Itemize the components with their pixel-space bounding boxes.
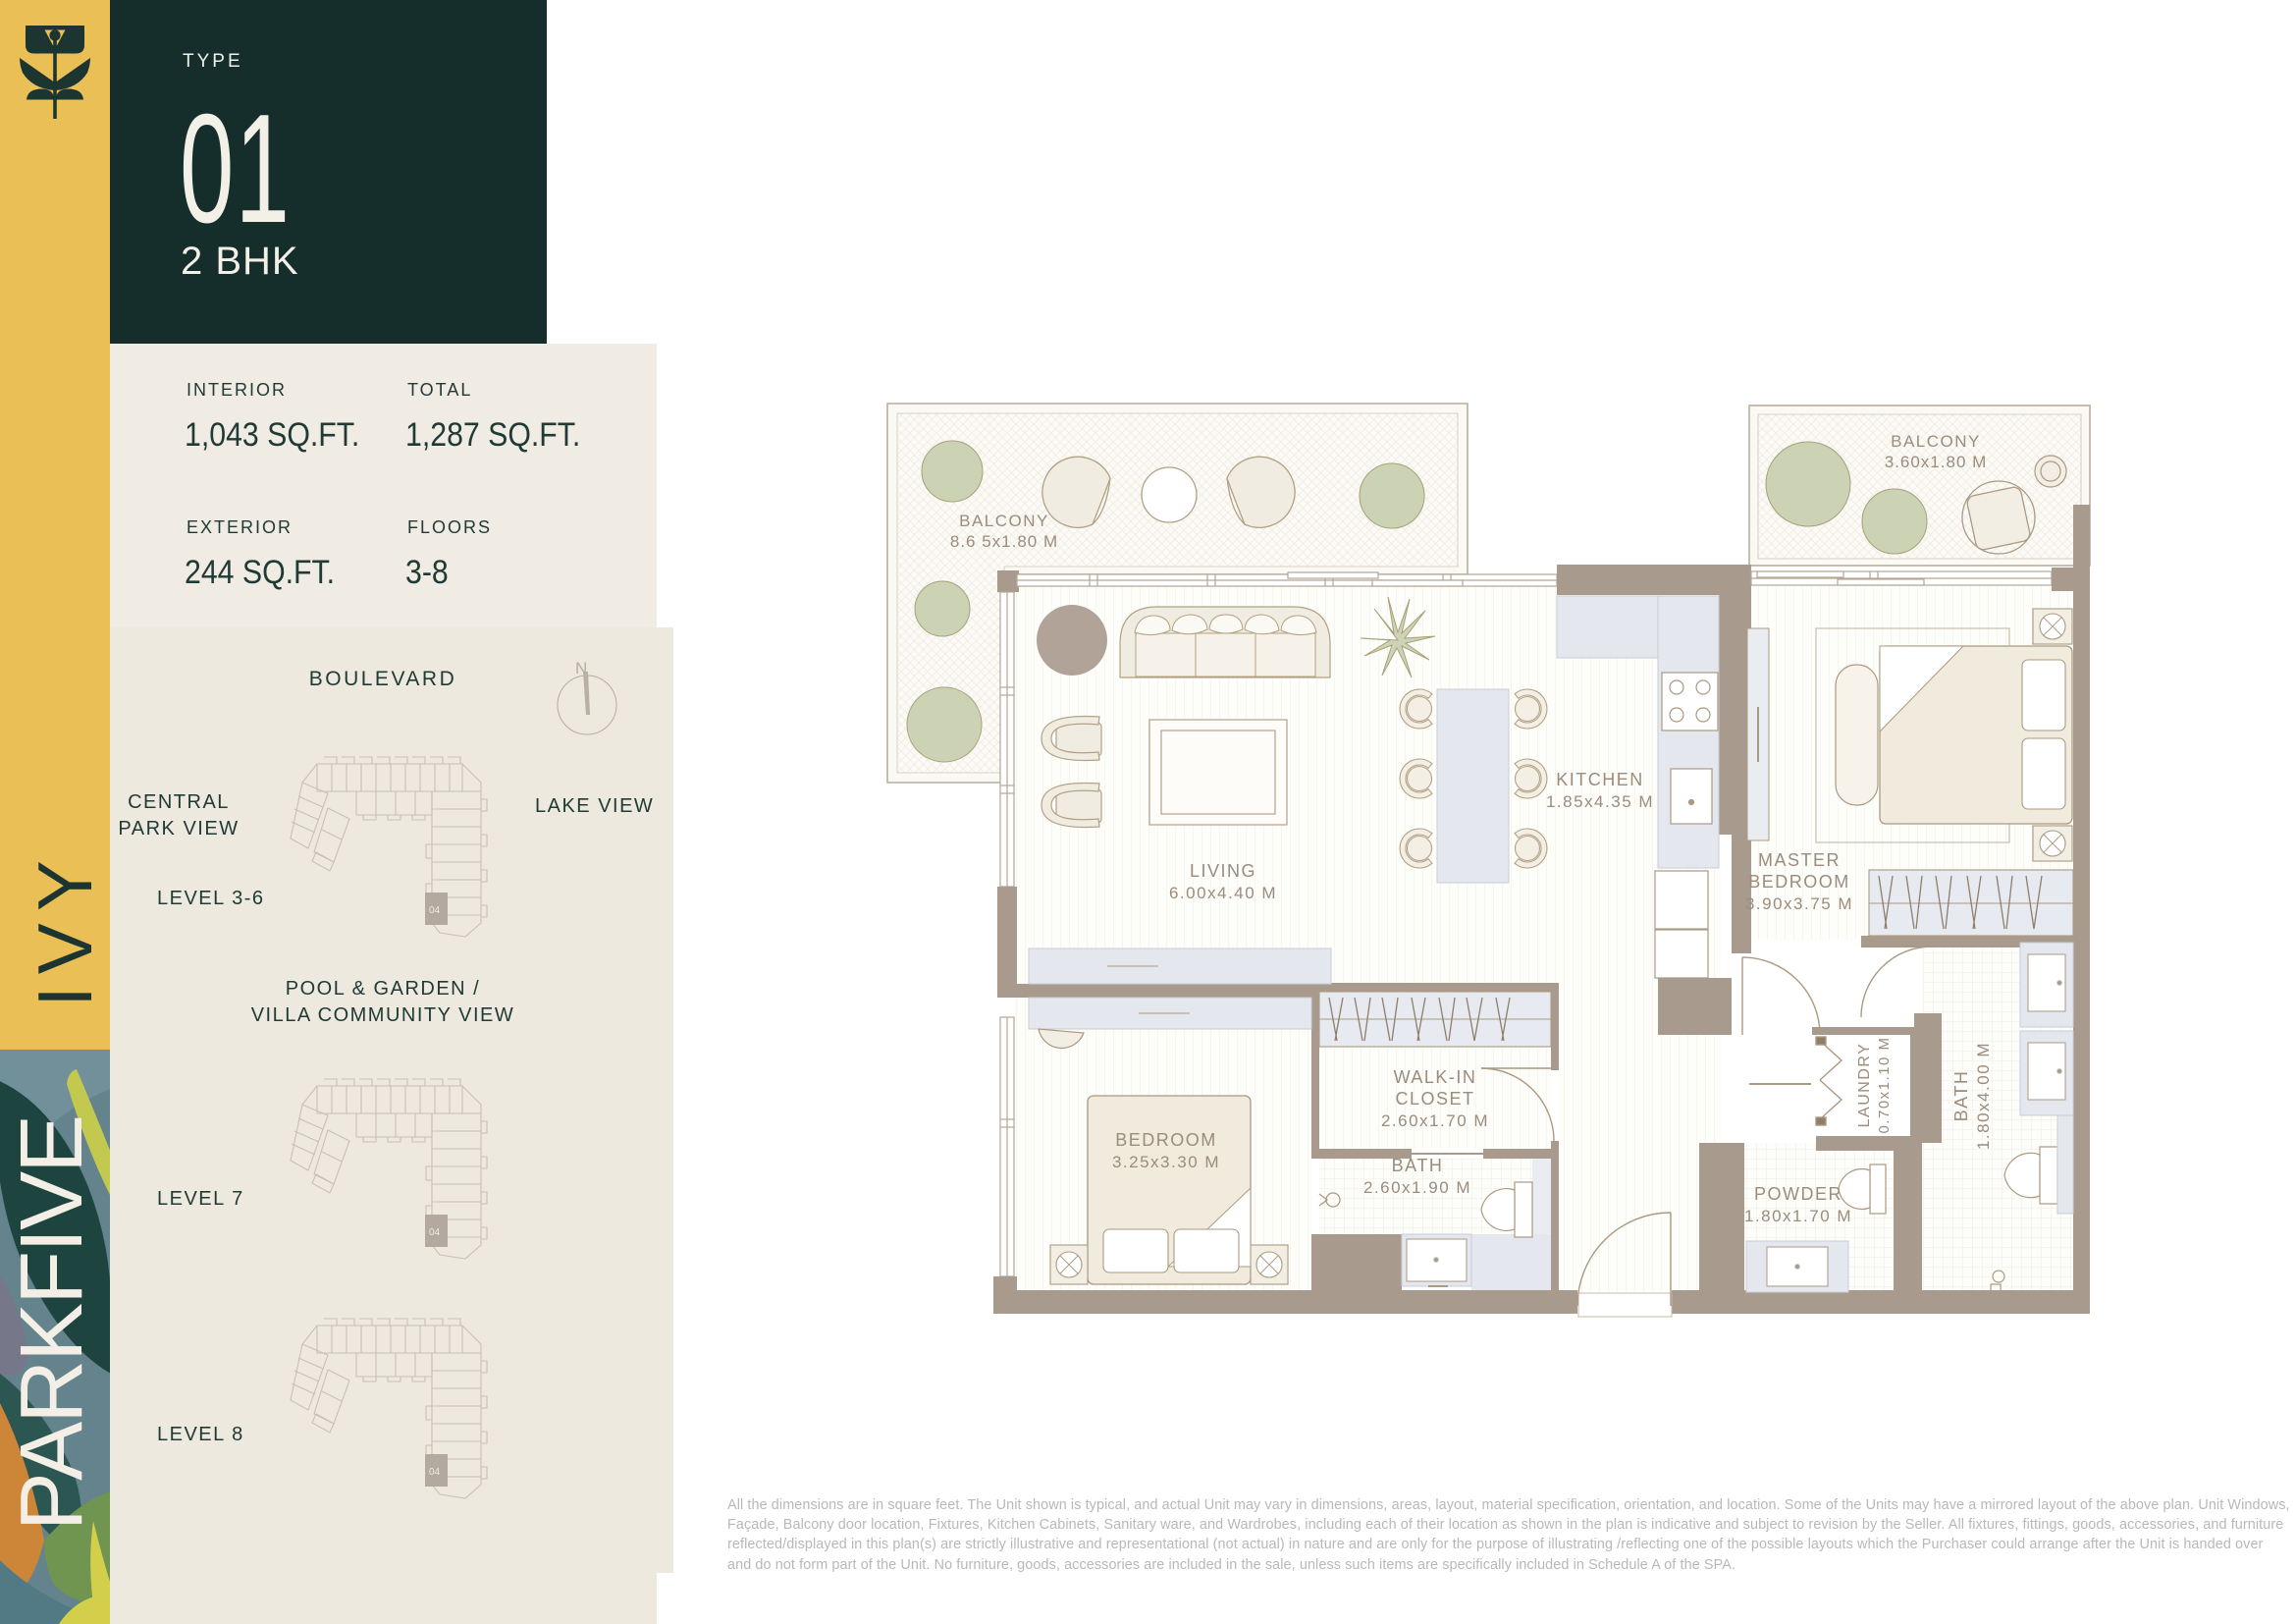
svg-text:04: 04 bbox=[429, 905, 441, 916]
svg-text:BATH: BATH bbox=[1951, 1070, 1971, 1122]
svg-text:BALCONY: BALCONY bbox=[1891, 432, 1981, 451]
svg-text:MASTER: MASTER bbox=[1758, 850, 1841, 870]
svg-text:CLOSET: CLOSET bbox=[1395, 1089, 1474, 1109]
svg-text:2.60x1.70 M: 2.60x1.70 M bbox=[1381, 1111, 1489, 1130]
svg-text:1.80x4.00 M: 1.80x4.00 M bbox=[1974, 1042, 1993, 1150]
svg-text:LAUNDRY: LAUNDRY bbox=[1856, 1043, 1873, 1128]
svg-text:3.60x1.80 M: 3.60x1.80 M bbox=[1885, 453, 1988, 471]
svg-text:0.70x1.10 M: 0.70x1.10 M bbox=[1876, 1036, 1893, 1133]
svg-text:04: 04 bbox=[429, 1467, 441, 1478]
svg-text:8.6 5x1.80 M: 8.6 5x1.80 M bbox=[950, 532, 1058, 551]
svg-text:POWDER: POWDER bbox=[1754, 1184, 1842, 1204]
svg-text:BEDROOM: BEDROOM bbox=[1748, 872, 1850, 892]
svg-text:KITCHEN: KITCHEN bbox=[1556, 770, 1644, 789]
svg-text:1.80x1.70 M: 1.80x1.70 M bbox=[1744, 1207, 1852, 1225]
svg-text:BEDROOM: BEDROOM bbox=[1115, 1130, 1217, 1150]
svg-text:04: 04 bbox=[429, 1227, 441, 1238]
svg-text:2.60x1.90 M: 2.60x1.90 M bbox=[1363, 1178, 1471, 1197]
svg-text:3.90x3.75 M: 3.90x3.75 M bbox=[1745, 894, 1853, 913]
svg-text:BATH: BATH bbox=[1392, 1156, 1444, 1175]
svg-text:LIVING: LIVING bbox=[1190, 861, 1256, 881]
svg-text:WALK-IN: WALK-IN bbox=[1394, 1067, 1477, 1087]
svg-text:6.00x4.40 M: 6.00x4.40 M bbox=[1169, 884, 1277, 902]
svg-text:BALCONY: BALCONY bbox=[959, 512, 1049, 530]
svg-text:1.85x4.35 M: 1.85x4.35 M bbox=[1546, 792, 1654, 811]
svg-text:3.25x3.30 M: 3.25x3.30 M bbox=[1112, 1153, 1220, 1171]
